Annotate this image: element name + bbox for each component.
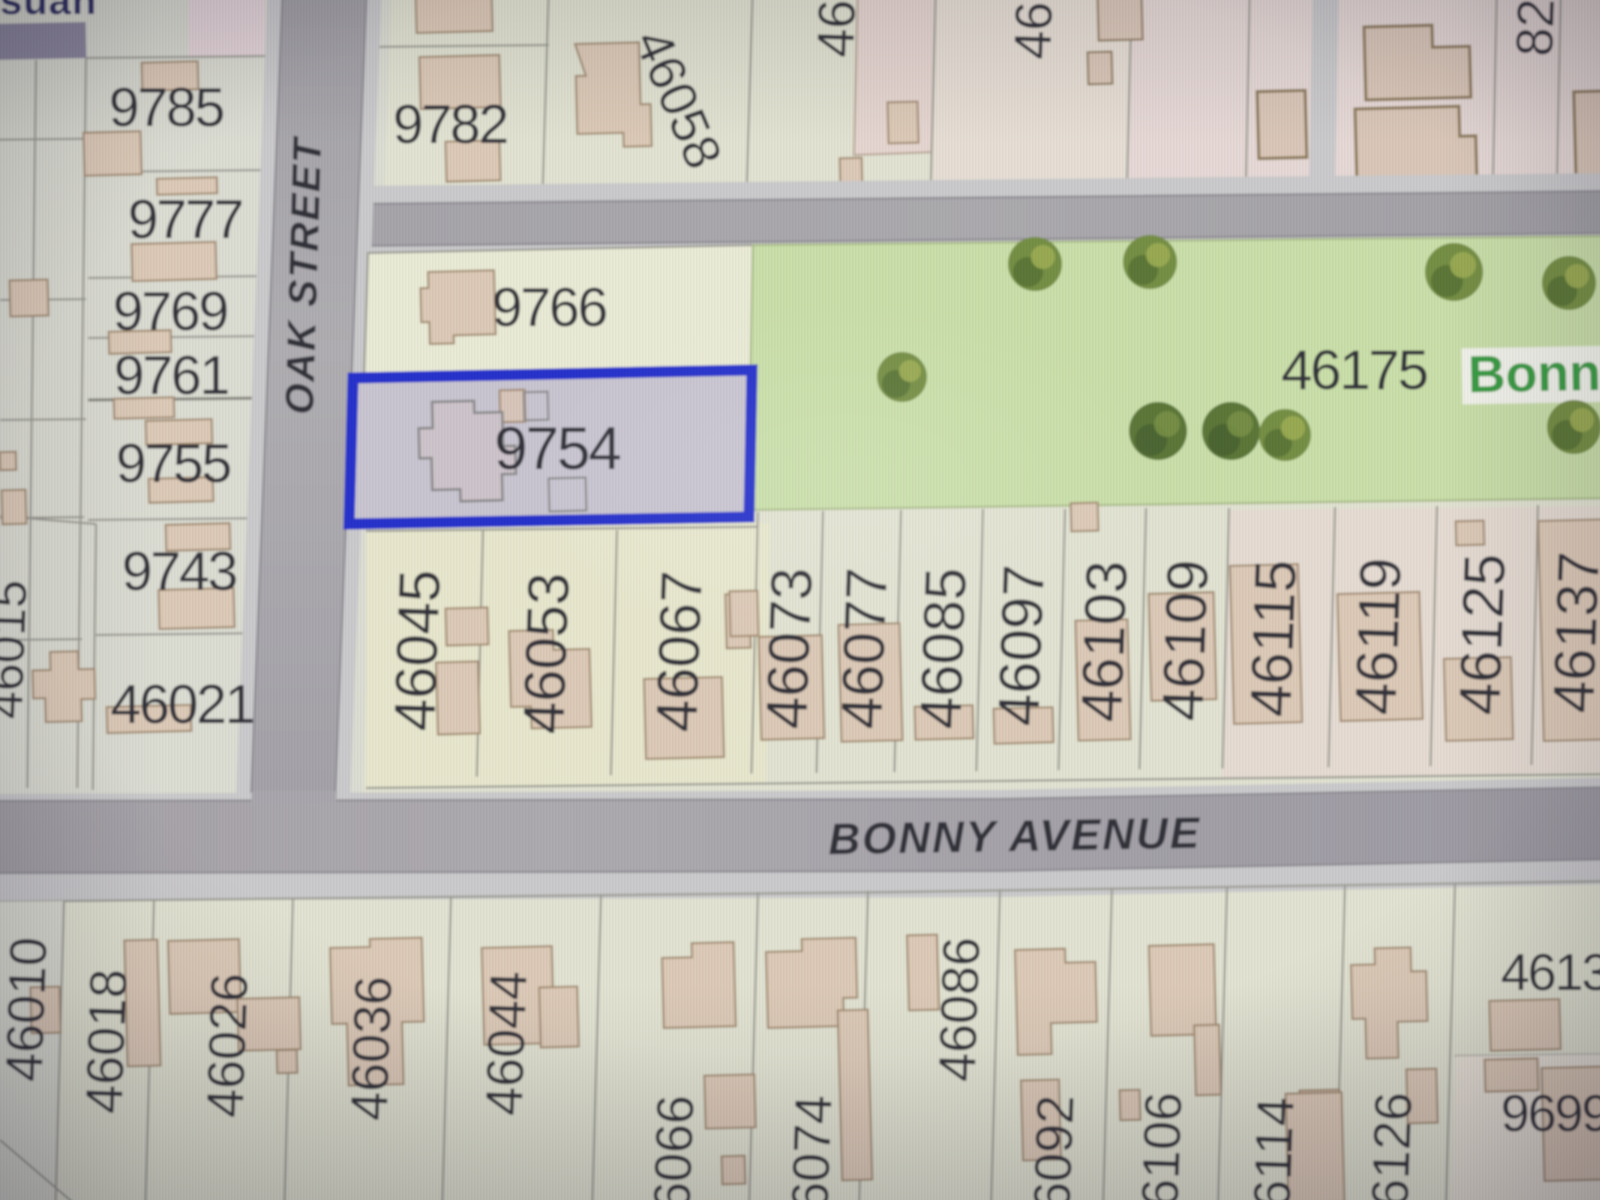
svg-text:46021: 46021 <box>111 673 254 735</box>
svg-text:46092: 46092 <box>1023 1094 1086 1200</box>
svg-text:Bonny: Bonny <box>1467 343 1600 404</box>
svg-text:9755: 9755 <box>116 432 231 494</box>
svg-text:46119: 46119 <box>1343 557 1413 716</box>
svg-text:46015: 46015 <box>0 579 37 720</box>
svg-text:96995: 96995 <box>1501 1085 1600 1143</box>
svg-text:9785: 9785 <box>109 76 224 138</box>
svg-text:46103: 46103 <box>1069 560 1140 723</box>
svg-text:46053: 46053 <box>511 572 582 735</box>
svg-text:46026: 46026 <box>197 972 260 1119</box>
svg-text:9761: 9761 <box>114 344 228 406</box>
svg-text:46045: 46045 <box>382 569 453 732</box>
svg-text:46086: 46086 <box>929 936 992 1083</box>
svg-text:46109: 46109 <box>1150 559 1221 722</box>
svg-text:46: 46 <box>807 0 867 58</box>
svg-text:46097: 46097 <box>986 564 1057 727</box>
svg-text:46036: 46036 <box>341 975 404 1122</box>
svg-text:suan: suan <box>0 0 97 23</box>
svg-text:OAK STREET: OAK STREET <box>278 135 330 416</box>
svg-text:46126: 46126 <box>1361 1091 1424 1200</box>
svg-text:46137: 46137 <box>1541 551 1600 714</box>
svg-text:46085: 46085 <box>908 567 979 730</box>
svg-text:46134: 46134 <box>1501 944 1600 1002</box>
svg-text:46018: 46018 <box>76 968 139 1115</box>
svg-text:46: 46 <box>1004 1 1064 61</box>
svg-text:82: 82 <box>1506 0 1566 57</box>
svg-text:9766: 9766 <box>492 276 607 338</box>
svg-text:9782: 9782 <box>393 93 507 155</box>
svg-text:9769: 9769 <box>113 280 227 342</box>
svg-text:BONNY AVENUE: BONNY AVENUE <box>828 809 1202 864</box>
svg-text:46106: 46106 <box>1131 1091 1194 1200</box>
svg-text:46125: 46125 <box>1447 553 1518 716</box>
svg-text:46077: 46077 <box>829 567 900 730</box>
svg-text:46073: 46073 <box>754 567 825 730</box>
svg-text:9743: 9743 <box>122 540 237 602</box>
svg-text:46114: 46114 <box>1243 1096 1306 1200</box>
svg-text:46067: 46067 <box>644 570 715 733</box>
svg-text:46074: 46074 <box>781 1094 844 1200</box>
svg-text:46175: 46175 <box>1281 338 1427 401</box>
svg-text:46115: 46115 <box>1238 559 1308 718</box>
svg-text:46010: 46010 <box>0 936 59 1083</box>
svg-text:9777: 9777 <box>128 188 242 250</box>
svg-text:9754: 9754 <box>494 415 620 482</box>
svg-text:46066: 46066 <box>643 1094 706 1200</box>
svg-text:46044: 46044 <box>476 970 539 1117</box>
